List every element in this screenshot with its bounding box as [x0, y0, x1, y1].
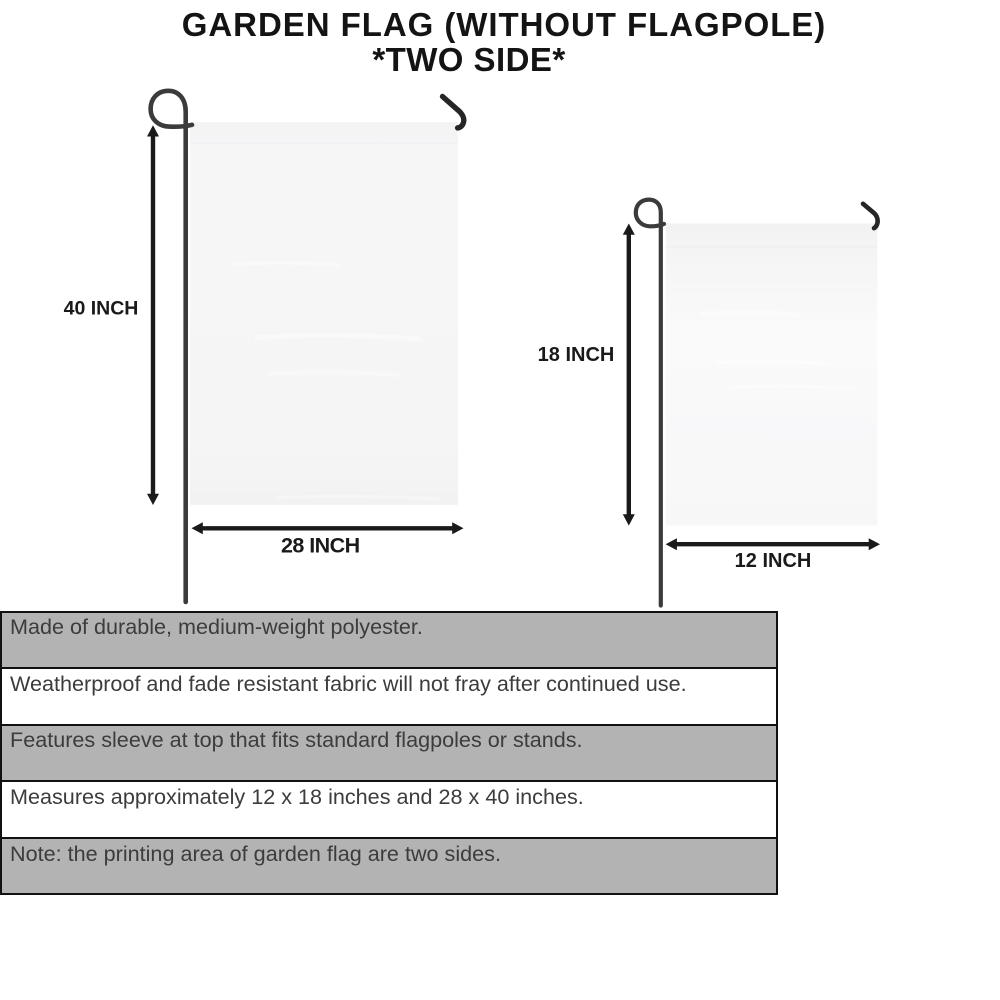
svg-text:18 INCH: 18 INCH [538, 344, 615, 366]
svg-text:28 INCH: 28 INCH [281, 534, 360, 558]
svg-text:12 INCH: 12 INCH [735, 550, 812, 572]
svg-text:40 INCH: 40 INCH [64, 298, 139, 320]
